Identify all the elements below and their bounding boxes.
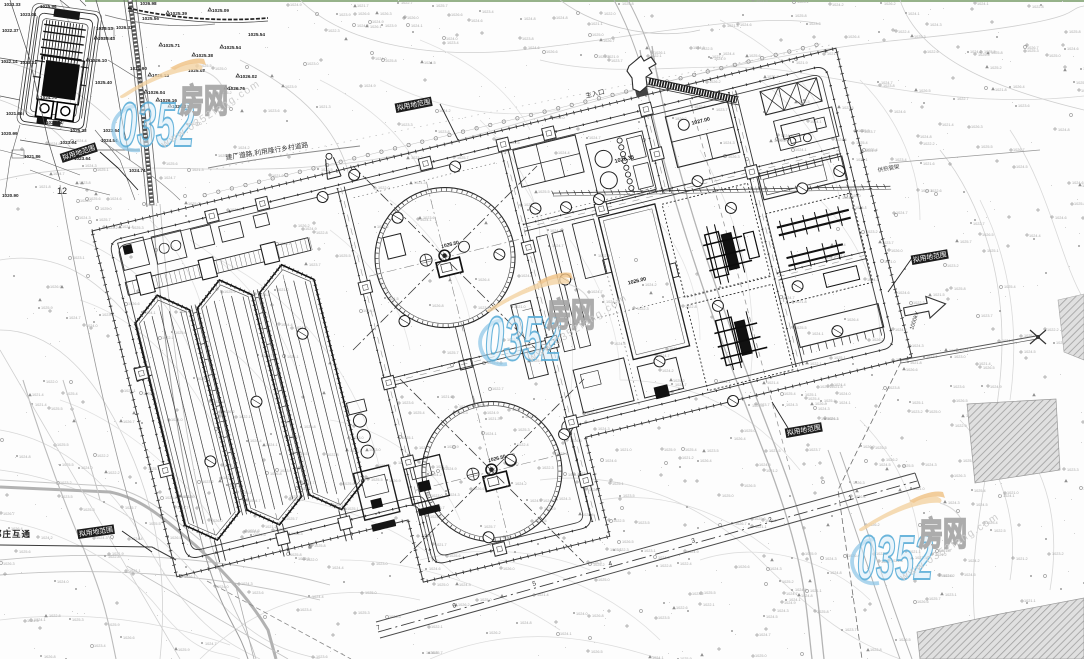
svg-text:1024.3: 1024.3	[786, 403, 798, 407]
svg-text:1021.8: 1021.8	[795, 300, 807, 304]
svg-text:1026.2: 1026.2	[489, 631, 501, 635]
svg-text:1024.7: 1024.7	[759, 633, 771, 637]
svg-text:1023.2: 1023.2	[692, 592, 704, 596]
svg-text:1025.6: 1025.6	[89, 197, 101, 201]
svg-text:1025.54: 1025.54	[248, 32, 265, 37]
svg-text:1024.5: 1024.5	[766, 615, 778, 619]
svg-text:1025.4: 1025.4	[413, 411, 425, 415]
svg-text:1025.7: 1025.7	[821, 417, 833, 421]
svg-text:1026.3: 1026.3	[971, 125, 983, 129]
svg-text:1025.1: 1025.1	[612, 482, 624, 486]
svg-text:1025.3: 1025.3	[132, 226, 144, 230]
svg-text:1026.5: 1026.5	[956, 399, 968, 403]
svg-text:1022.4: 1022.4	[680, 562, 692, 566]
svg-text:1025.0: 1025.0	[1076, 81, 1084, 85]
svg-text:1023.6: 1023.6	[252, 591, 264, 595]
svg-text:1023.9: 1023.9	[285, 85, 297, 89]
svg-text:1023.0: 1023.0	[369, 448, 381, 452]
svg-text:1022.8: 1022.8	[1032, 5, 1044, 9]
svg-text:1022.3: 1022.3	[328, 29, 340, 33]
svg-text:1025.6: 1025.6	[754, 517, 766, 521]
svg-text:1023.6: 1023.6	[423, 216, 435, 220]
svg-text:1025.3: 1025.3	[518, 428, 530, 432]
svg-text:1023.2: 1023.2	[911, 410, 923, 414]
svg-text:1022.9: 1022.9	[183, 495, 195, 499]
svg-text:1023.01: 1023.01	[20, 12, 37, 17]
svg-text:1025.9: 1025.9	[41, 306, 53, 310]
svg-text:1023.1: 1023.1	[644, 549, 656, 553]
svg-text:1024.9: 1024.9	[305, 227, 317, 231]
svg-text:1024.6: 1024.6	[429, 567, 441, 571]
svg-text:1024.7: 1024.7	[675, 383, 687, 387]
svg-text:1022.4: 1022.4	[898, 30, 910, 34]
svg-text:1024.5: 1024.5	[879, 463, 891, 467]
svg-text:1022.4: 1022.4	[517, 443, 529, 447]
svg-text:1020.99: 1020.99	[1, 131, 18, 136]
svg-text:1025.7: 1025.7	[99, 218, 111, 222]
svg-text:1022.8: 1022.8	[582, 513, 594, 517]
svg-text:1025.7: 1025.7	[286, 517, 298, 521]
svg-text:1024.5: 1024.5	[976, 503, 988, 507]
svg-text:1025.9: 1025.9	[664, 448, 676, 452]
svg-text:1024.3: 1024.3	[459, 583, 471, 587]
svg-text:1025.4: 1025.4	[974, 489, 986, 493]
svg-text:1025.1: 1025.1	[912, 401, 924, 405]
svg-text:1024.3: 1024.3	[825, 557, 837, 561]
svg-text:1025.13: 1025.13	[96, 26, 113, 31]
svg-text:1021.8: 1021.8	[39, 185, 51, 189]
svg-text:1026.5: 1026.5	[744, 484, 756, 488]
svg-text:1023.4: 1023.4	[300, 608, 312, 612]
svg-text:1026.6: 1026.6	[473, 487, 485, 491]
svg-text:1026.3: 1026.3	[853, 481, 865, 485]
svg-text:1025.33: 1025.33	[70, 128, 87, 133]
svg-text:1025.0: 1025.0	[1049, 54, 1061, 58]
svg-text:1023.8: 1023.8	[438, 130, 450, 134]
svg-text:1024.9: 1024.9	[290, 3, 302, 7]
svg-text:1026.10: 1026.10	[90, 58, 107, 63]
svg-text:1021.2: 1021.2	[265, 525, 277, 529]
svg-text:1023.8: 1023.8	[888, 386, 900, 390]
svg-text:1024.4: 1024.4	[281, 323, 293, 327]
svg-text:1022.5: 1022.5	[298, 557, 310, 561]
svg-text:1021.4: 1021.4	[767, 381, 779, 385]
svg-text:1025.1: 1025.1	[820, 385, 832, 389]
svg-text:1025.8: 1025.8	[314, 544, 326, 548]
svg-text:1024.0: 1024.0	[839, 392, 851, 396]
svg-text:1021.7: 1021.7	[435, 543, 447, 547]
svg-text:1024.8: 1024.8	[556, 16, 568, 20]
svg-text:1025.4: 1025.4	[856, 141, 868, 145]
svg-text:1025.5: 1025.5	[51, 407, 63, 411]
svg-text:1023.7: 1023.7	[845, 628, 857, 632]
svg-text:1022.0: 1022.0	[46, 380, 58, 384]
svg-text:1025.7: 1025.7	[447, 351, 459, 355]
svg-text:1024.0: 1024.0	[576, 612, 588, 616]
svg-text:1025.1: 1025.1	[987, 249, 999, 253]
svg-text:1022.3: 1022.3	[637, 307, 649, 311]
svg-text:1022.37: 1022.37	[2, 28, 19, 33]
svg-text:1021.8: 1021.8	[995, 88, 1007, 92]
svg-text:1024.8: 1024.8	[520, 621, 532, 625]
svg-text:1025.5: 1025.5	[795, 326, 807, 330]
svg-text:1025.6: 1025.6	[449, 554, 461, 558]
svg-text:1025.8: 1025.8	[290, 553, 302, 557]
svg-text:1024.1: 1024.1	[789, 598, 801, 602]
svg-text:1021.3: 1021.3	[192, 168, 204, 172]
svg-text:1025.6: 1025.6	[343, 482, 355, 486]
svg-text:1025.4: 1025.4	[824, 399, 836, 403]
svg-text:1021.0: 1021.0	[620, 448, 632, 452]
svg-text:1023.8: 1023.8	[883, 84, 895, 88]
svg-text:1025.6: 1025.6	[166, 162, 178, 166]
svg-text:1025.4: 1025.4	[165, 496, 177, 500]
svg-text:1021.5: 1021.5	[727, 24, 739, 28]
svg-text:1024.6: 1024.6	[471, 19, 483, 23]
svg-text:1025.7: 1025.7	[436, 4, 448, 8]
svg-text:1022.6: 1022.6	[927, 50, 939, 54]
svg-text:1021.1: 1021.1	[1024, 599, 1036, 603]
svg-text:1026.0: 1026.0	[407, 16, 419, 20]
svg-text:1024.3: 1024.3	[723, 141, 735, 145]
svg-text:1025.6: 1025.6	[749, 54, 761, 58]
svg-text:1023.7: 1023.7	[309, 263, 321, 267]
svg-text:1025.1: 1025.1	[347, 507, 359, 511]
svg-text:1025.4: 1025.4	[866, 148, 878, 152]
svg-text:1024.3: 1024.3	[777, 609, 789, 613]
svg-text:1026.98: 1026.98	[140, 1, 157, 6]
svg-text:1026.5: 1026.5	[622, 540, 634, 544]
svg-text:1024.5: 1024.5	[1016, 165, 1028, 169]
svg-text:1023.04: 1023.04	[60, 140, 77, 145]
svg-text:1022.9: 1022.9	[941, 574, 953, 578]
svg-text:1026.4: 1026.4	[847, 318, 859, 322]
svg-text:1022.8: 1022.8	[870, 648, 882, 652]
svg-text:1022.1: 1022.1	[431, 625, 443, 629]
svg-text:1025.3: 1025.3	[914, 35, 926, 39]
svg-text:1024.8: 1024.8	[521, 274, 533, 278]
svg-text:1026.6: 1026.6	[426, 651, 438, 655]
svg-text:1023.31: 1023.31	[20, 60, 37, 65]
svg-text:1023.6: 1023.6	[316, 655, 328, 659]
svg-text:1025.09: 1025.09	[212, 8, 229, 13]
svg-text:1024.2: 1024.2	[662, 369, 674, 373]
svg-text:1023.7: 1023.7	[981, 314, 993, 318]
svg-text:1026.4: 1026.4	[734, 437, 746, 441]
svg-text:1024.1: 1024.1	[810, 120, 822, 124]
svg-text:1024.4: 1024.4	[723, 52, 735, 56]
svg-text:1025.9: 1025.9	[108, 623, 120, 627]
svg-text:1025.4: 1025.4	[1004, 285, 1016, 289]
svg-text:1023.3: 1023.3	[809, 22, 821, 26]
svg-text:1024.3: 1024.3	[85, 164, 97, 168]
svg-text:1025.5: 1025.5	[149, 522, 161, 526]
svg-text:1024.1: 1024.1	[839, 401, 851, 405]
svg-text:1026.5: 1026.5	[983, 366, 995, 370]
svg-text:1024.4: 1024.4	[75, 139, 87, 143]
svg-text:1024.7: 1024.7	[249, 499, 261, 503]
svg-text:1021.86: 1021.86	[24, 154, 41, 159]
svg-text:1024.7: 1024.7	[783, 296, 795, 300]
svg-text:1021.3: 1021.3	[319, 105, 331, 109]
svg-text:1023.54: 1023.54	[46, 120, 63, 125]
svg-text:1024.3: 1024.3	[241, 582, 253, 586]
svg-text:1024.6: 1024.6	[898, 291, 910, 295]
svg-text:1023.3: 1023.3	[401, 123, 413, 127]
svg-text:1024.8: 1024.8	[801, 594, 813, 598]
svg-text:1026.9: 1026.9	[389, 479, 401, 483]
svg-text:1023.0: 1023.0	[376, 562, 388, 566]
svg-text:1025.56: 1025.56	[142, 16, 159, 21]
svg-text:1025.0: 1025.0	[215, 67, 227, 71]
svg-text:1022.8: 1022.8	[660, 564, 672, 568]
svg-text:1026.4: 1026.4	[700, 459, 712, 463]
svg-text:1023.7: 1023.7	[611, 59, 623, 63]
svg-text:1023.9: 1023.9	[385, 24, 397, 28]
svg-text:1025.96: 1025.96	[40, 4, 57, 9]
svg-text:1023.5: 1023.5	[623, 494, 635, 498]
svg-text:1025.4: 1025.4	[808, 397, 820, 401]
svg-text:1026.3: 1026.3	[3, 562, 15, 566]
svg-text:1024.74: 1024.74	[129, 168, 146, 173]
svg-text:1024.7: 1024.7	[164, 176, 176, 180]
svg-text:1025.0: 1025.0	[929, 410, 941, 414]
svg-text:1024.1: 1024.1	[867, 278, 879, 282]
svg-text:1022.8: 1022.8	[49, 614, 61, 618]
svg-text:1023.1: 1023.1	[945, 593, 957, 597]
svg-text:1024.7: 1024.7	[69, 316, 81, 320]
svg-text:1024.1: 1024.1	[908, 12, 920, 16]
svg-text:1022.2: 1022.2	[97, 454, 109, 458]
svg-text:1025.2: 1025.2	[990, 66, 1002, 70]
svg-text:1026.7: 1026.7	[1027, 46, 1039, 50]
svg-text:1025.6: 1025.6	[175, 331, 187, 335]
svg-text:1024.7: 1024.7	[589, 136, 601, 140]
svg-text:1022.1: 1022.1	[703, 603, 715, 607]
svg-text:1022.7: 1022.7	[401, 1, 413, 5]
svg-text:1021.4: 1021.4	[32, 393, 44, 397]
svg-text:1024.4: 1024.4	[332, 566, 344, 570]
svg-text:1024.1: 1024.1	[560, 632, 572, 636]
svg-text:1024.1: 1024.1	[144, 311, 156, 315]
svg-text:1023.1: 1023.1	[797, 0, 809, 4]
svg-text:1021.4: 1021.4	[979, 362, 991, 366]
svg-text:1022.1: 1022.1	[162, 336, 174, 340]
svg-text:1022.8: 1022.8	[685, 305, 697, 309]
svg-text:1024.1: 1024.1	[812, 332, 824, 336]
svg-text:1024.1: 1024.1	[795, 148, 807, 152]
svg-text:1026.6: 1026.6	[358, 12, 370, 16]
svg-text:1024.9: 1024.9	[364, 84, 376, 88]
svg-text:1024.2: 1024.2	[645, 283, 657, 287]
svg-text:1023.8: 1023.8	[79, 181, 91, 185]
svg-text:1025.54: 1025.54	[224, 45, 241, 50]
svg-text:1026.6: 1026.6	[128, 302, 140, 306]
svg-text:1024.5: 1024.5	[1024, 350, 1036, 354]
svg-text:1026.2: 1026.2	[886, 458, 898, 462]
svg-text:1021.5: 1021.5	[756, 0, 768, 3]
svg-text:1026.6: 1026.6	[451, 13, 463, 17]
svg-text:1024.8: 1024.8	[19, 455, 31, 459]
svg-text:1022.8: 1022.8	[108, 555, 120, 559]
svg-text:1025.9: 1025.9	[178, 648, 190, 652]
svg-text:1024.0: 1024.0	[217, 585, 229, 589]
svg-text:1024.8: 1024.8	[920, 135, 932, 139]
svg-text:1021.0: 1021.0	[884, 260, 896, 264]
svg-text:1022.7: 1022.7	[712, 55, 724, 59]
svg-text:1024.1: 1024.1	[287, 355, 299, 359]
svg-text:1021.8: 1021.8	[910, 361, 922, 365]
svg-text:1024.7: 1024.7	[205, 642, 217, 646]
svg-text:1023.9: 1023.9	[339, 13, 351, 17]
svg-text:1024.8: 1024.8	[247, 530, 259, 534]
svg-text:1024.3: 1024.3	[912, 344, 924, 348]
svg-text:1021.6: 1021.6	[441, 395, 453, 399]
svg-text:1022.8: 1022.8	[316, 231, 328, 235]
svg-text:1026.6: 1026.6	[738, 565, 750, 569]
svg-text:1025.39: 1025.39	[170, 11, 187, 16]
svg-text:1025.4: 1025.4	[685, 448, 697, 452]
svg-text:1024.3: 1024.3	[530, 499, 542, 503]
svg-text:1025.5: 1025.5	[981, 145, 993, 149]
svg-text:1025.8: 1025.8	[622, 2, 634, 6]
svg-text:1026.5: 1026.5	[170, 536, 182, 540]
svg-text:1023.2: 1023.2	[866, 230, 878, 234]
svg-text:1026.3: 1026.3	[380, 12, 392, 16]
svg-text:1025.8: 1025.8	[1074, 202, 1084, 206]
svg-text:1025.8: 1025.8	[954, 287, 966, 291]
svg-text:1025.8: 1025.8	[304, 425, 316, 429]
svg-text:1024.1: 1024.1	[977, 2, 989, 6]
svg-text:1023.4: 1023.4	[447, 41, 459, 45]
svg-text:1025.5: 1025.5	[339, 254, 351, 258]
svg-text:1023.1: 1023.1	[124, 389, 136, 393]
svg-text:邢庄互通: 邢庄互通	[0, 529, 31, 539]
svg-text:1026.8: 1026.8	[592, 614, 604, 618]
svg-text:1023.2: 1023.2	[1052, 552, 1064, 556]
svg-text:1024.6: 1024.6	[894, 110, 906, 114]
svg-text:1024.2: 1024.2	[832, 3, 844, 7]
svg-text:1025.0: 1025.0	[100, 207, 112, 211]
svg-text:1026.3: 1026.3	[728, 155, 740, 159]
svg-text:1024.6: 1024.6	[27, 619, 39, 623]
svg-text:1022.2: 1022.2	[923, 142, 935, 146]
svg-text:1026.7: 1026.7	[123, 420, 135, 424]
svg-text:1021.2: 1021.2	[1016, 557, 1028, 561]
svg-text:1024.6: 1024.6	[740, 23, 752, 27]
svg-text:1026.0: 1026.0	[891, 249, 903, 253]
svg-text:1025.71: 1025.71	[163, 43, 180, 48]
svg-text:1022.0: 1022.0	[378, 186, 390, 190]
svg-text:1022.2: 1022.2	[1047, 328, 1059, 332]
svg-text:1024.3: 1024.3	[770, 567, 782, 571]
svg-text:1024.1: 1024.1	[411, 24, 423, 28]
svg-text:1023.5: 1023.5	[638, 521, 650, 525]
svg-text:1022.0: 1022.0	[604, 12, 616, 16]
svg-text:1021.1: 1021.1	[591, 22, 603, 26]
svg-text:1025.43: 1025.43	[98, 36, 115, 41]
svg-text:1022.7: 1022.7	[957, 97, 969, 101]
svg-text:1025.1: 1025.1	[97, 168, 109, 172]
svg-text:1025.0: 1025.0	[365, 591, 377, 595]
svg-text:1026.6: 1026.6	[906, 368, 918, 372]
svg-text:1024.70: 1024.70	[40, 95, 57, 100]
svg-text:1023.6: 1023.6	[402, 401, 414, 405]
svg-text:1023.2: 1023.2	[947, 264, 959, 268]
svg-text:1025.7: 1025.7	[484, 525, 496, 529]
svg-text:1026.6: 1026.6	[123, 636, 135, 640]
svg-text:1023.7: 1023.7	[716, 108, 728, 112]
svg-text:1026.5: 1026.5	[591, 650, 603, 654]
svg-text:1025.5: 1025.5	[538, 190, 550, 194]
svg-text:1024.3: 1024.3	[930, 23, 942, 27]
svg-text:1025.8: 1025.8	[385, 59, 397, 63]
svg-text:1025.9: 1025.9	[805, 552, 817, 556]
svg-text:1024.8: 1024.8	[524, 17, 536, 21]
svg-text:1024.2: 1024.2	[238, 146, 250, 150]
svg-text:1025.8: 1025.8	[1069, 30, 1081, 34]
svg-text:1026.0: 1026.0	[503, 567, 515, 571]
svg-text:1023.0: 1023.0	[307, 62, 319, 66]
svg-text:1026.5: 1026.5	[982, 233, 994, 237]
svg-text:1026.8: 1026.8	[432, 304, 444, 308]
svg-text:1023.0: 1023.0	[954, 355, 966, 359]
svg-text:1023.8: 1023.8	[522, 37, 534, 41]
svg-text:1025.40: 1025.40	[95, 80, 112, 85]
svg-text:1024.4: 1024.4	[122, 225, 134, 229]
svg-text:1021.6: 1021.6	[831, 385, 843, 389]
svg-text:1024.3: 1024.3	[925, 463, 937, 467]
svg-text:1025.5: 1025.5	[57, 443, 69, 447]
svg-text:1025.5: 1025.5	[875, 446, 887, 450]
svg-text:1021.7: 1021.7	[357, 4, 369, 8]
svg-text:1024.8: 1024.8	[1058, 128, 1070, 132]
svg-text:1021.9: 1021.9	[796, 61, 808, 65]
svg-text:1026.4: 1026.4	[848, 35, 860, 39]
svg-text:1025.3: 1025.3	[72, 618, 84, 622]
svg-text:1023.33: 1023.33	[4, 2, 21, 7]
svg-text:1022.5: 1022.5	[994, 529, 1006, 533]
svg-text:1026.9: 1026.9	[50, 285, 62, 289]
svg-text:1021.5: 1021.5	[769, 449, 781, 453]
svg-text:1021.86: 1021.86	[6, 111, 23, 116]
svg-text:1025.0: 1025.0	[480, 598, 492, 602]
svg-text:1021.2: 1021.2	[682, 456, 694, 460]
svg-text:1025.7: 1025.7	[929, 597, 941, 601]
svg-text:1025.0: 1025.0	[755, 654, 767, 658]
svg-text:1024.3: 1024.3	[79, 216, 91, 220]
svg-text:1024.7: 1024.7	[786, 592, 798, 596]
svg-text:1025.3: 1025.3	[358, 611, 370, 615]
svg-text:1024.3: 1024.3	[598, 427, 610, 431]
svg-text:1024.6: 1024.6	[528, 46, 540, 50]
svg-text:1024.7: 1024.7	[591, 290, 603, 294]
svg-text:1024.2: 1024.2	[439, 109, 451, 113]
svg-text:1021.3: 1021.3	[488, 417, 500, 421]
svg-text:1022.3: 1022.3	[542, 466, 554, 470]
svg-text:1026.3: 1026.3	[954, 474, 966, 478]
svg-text:1025.5: 1025.5	[371, 478, 383, 482]
svg-text:1024.2: 1024.2	[968, 559, 980, 563]
svg-text:1022.7: 1022.7	[973, 222, 985, 226]
svg-text:1025.5: 1025.5	[704, 591, 716, 595]
svg-text:1022.6: 1022.6	[676, 606, 688, 610]
svg-text:1026.2: 1026.2	[884, 2, 896, 6]
svg-text:1024.4: 1024.4	[312, 595, 324, 599]
svg-text:1025.90: 1025.90	[130, 66, 147, 71]
svg-text:1025.4: 1025.4	[784, 392, 796, 396]
svg-text:1023.1: 1023.1	[73, 256, 85, 260]
